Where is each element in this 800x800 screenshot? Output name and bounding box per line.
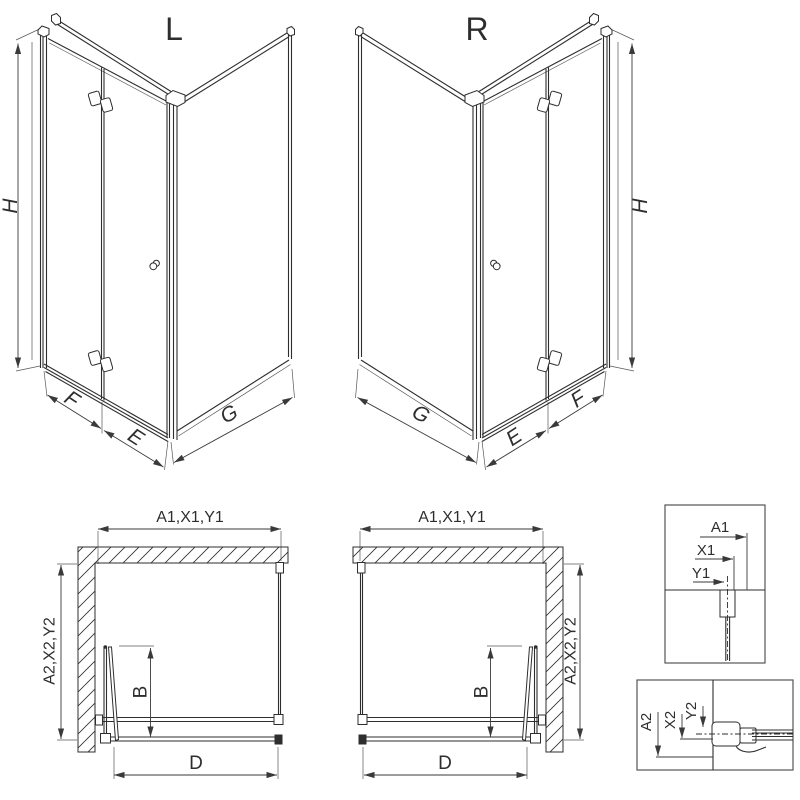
detail-bottom-a2-label: A2 [638, 713, 655, 731]
iso-view-right: R H F E G [356, 11, 652, 470]
detail-top-a1-label: A1 [711, 519, 729, 536]
plan-left-dim-top-label: A1,X1,Y1 [156, 509, 224, 526]
detail-bottom-y2-label: Y2 [683, 702, 700, 720]
plan-left-dim-side-label: A2,X2,Y2 [41, 617, 58, 685]
plan-right-dim-door-label: B [471, 686, 492, 699]
variant-label-right: R [465, 11, 488, 47]
detail-view-top: A1 X1 Y1 [665, 505, 765, 663]
plan-view-left: A1,X1,Y1 A2,X2,Y2 B D [41, 509, 288, 779]
dim-label-height-left: H [0, 198, 22, 214]
diagram-canvas: L H F E G R H F E G A1,X1,Y1 A2,X2,Y2 B … [0, 0, 800, 800]
dim-label-door-panel-right: F [567, 386, 591, 413]
variant-label-left: L [165, 11, 183, 47]
plan-right-dim-top-label: A1,X1,Y1 [418, 509, 486, 526]
dim-label-side-panel-left: G [217, 400, 242, 428]
plan-view-right: A1,X1,Y1 A2,X2,Y2 B D [353, 509, 584, 779]
dim-label-door-panel-left: F [60, 386, 84, 413]
plan-right-dim-side-label: A2,X2,Y2 [562, 617, 579, 685]
detail-bottom-x2-label: X2 [662, 711, 679, 729]
plan-left-dim-entry-label: D [189, 753, 203, 774]
dim-label-height-right: H [629, 198, 652, 214]
detail-view-bottom: A2 X2 Y2 [637, 680, 793, 770]
detail-top-y1-label: Y1 [692, 565, 710, 582]
detail-top-x1-label: X1 [697, 542, 715, 559]
iso-view-left: L H F E G [0, 11, 295, 470]
plan-left-dim-door-label: B [130, 686, 151, 699]
dim-label-side-panel-right: G [408, 400, 433, 428]
technical-diagram: L H F E G R H F E G A1,X1,Y1 A2,X2,Y2 B … [0, 0, 800, 800]
plan-right-dim-entry-label: D [438, 753, 452, 774]
